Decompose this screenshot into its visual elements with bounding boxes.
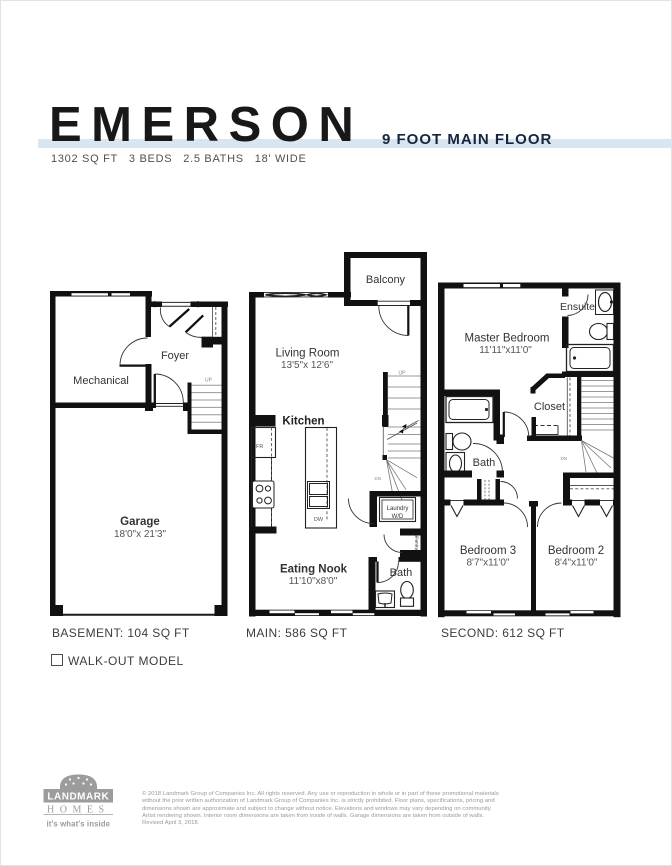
svg-text:Ensuite: Ensuite <box>560 301 595 313</box>
svg-text:DN: DN <box>375 476 382 481</box>
svg-text:Bath: Bath <box>473 457 496 469</box>
svg-text:11'10"x8'0": 11'10"x8'0" <box>289 576 338 587</box>
svg-text:HOMES: HOMES <box>47 805 110 816</box>
svg-text:Kitchen: Kitchen <box>282 416 324 428</box>
svg-text:8'4"x11'0": 8'4"x11'0" <box>555 558 598 569</box>
svg-text:13'5"x 12'6": 13'5"x 12'6" <box>281 360 334 371</box>
svg-text:FR: FR <box>256 444 263 450</box>
svg-text:LANDMARK: LANDMARK <box>47 792 109 803</box>
svg-text:Bedroom 2: Bedroom 2 <box>548 545 604 557</box>
svg-text:Eating Nook: Eating Nook <box>280 564 348 576</box>
svg-text:DW: DW <box>314 517 324 523</box>
svg-text:it's what's inside: it's what's inside <box>47 820 111 829</box>
svg-text:Closet: Closet <box>534 401 565 413</box>
svg-text:Pantry: Pantry <box>414 536 420 550</box>
svg-text:Living Room: Living Room <box>276 348 340 360</box>
svg-text:Balcony: Balcony <box>366 274 406 286</box>
svg-text:UP: UP <box>205 378 213 384</box>
svg-text:18'0"x 21'3": 18'0"x 21'3" <box>114 529 167 540</box>
svg-text:UP: UP <box>399 371 407 377</box>
svg-text:Laundry: Laundry <box>387 506 409 512</box>
svg-text:11'11"x11'0": 11'11"x11'0" <box>479 345 532 356</box>
svg-text:DN: DN <box>561 456 568 461</box>
svg-text:Mechanical: Mechanical <box>73 375 129 387</box>
svg-text:Master Bedroom: Master Bedroom <box>464 333 549 345</box>
svg-text:8'7"x11'0": 8'7"x11'0" <box>467 558 510 569</box>
svg-text:Garage: Garage <box>120 516 160 528</box>
svg-text:W/D: W/D <box>392 514 404 520</box>
svg-text:Bedroom 3: Bedroom 3 <box>460 545 516 557</box>
svg-text:Foyer: Foyer <box>161 350 189 362</box>
svg-text:Bath: Bath <box>390 567 413 579</box>
